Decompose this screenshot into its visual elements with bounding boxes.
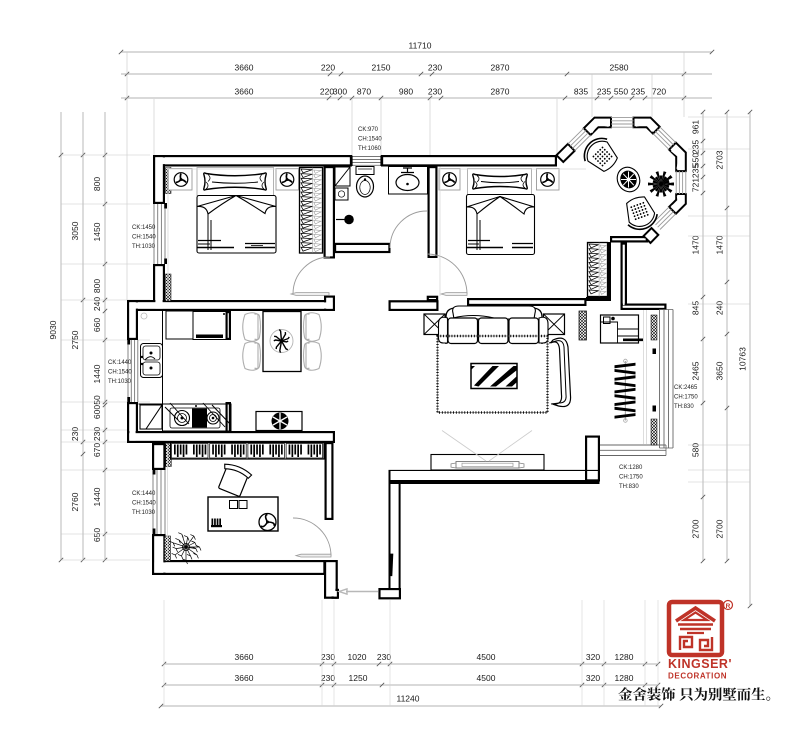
svg-text:550: 550: [614, 87, 628, 97]
svg-text:235: 235: [631, 87, 645, 97]
svg-text:CK:1440: CK:1440: [132, 491, 156, 497]
svg-text:TH:1030: TH:1030: [132, 244, 156, 250]
svg-text:961: 961: [691, 120, 701, 134]
svg-text:KINGSER': KINGSER': [668, 657, 732, 671]
svg-text:1020: 1020: [348, 652, 367, 662]
svg-text:TH:830: TH:830: [619, 484, 639, 490]
svg-text:800: 800: [92, 177, 102, 191]
svg-text:2870: 2870: [491, 63, 510, 73]
svg-text:3650: 3650: [715, 361, 725, 380]
svg-text:1470: 1470: [691, 235, 701, 254]
svg-text:2703: 2703: [715, 150, 725, 169]
svg-text:3660: 3660: [235, 673, 254, 683]
svg-text:11240: 11240: [396, 694, 419, 704]
svg-text:CH:1540: CH:1540: [108, 370, 132, 376]
svg-text:TH:1060: TH:1060: [358, 146, 382, 152]
svg-text:CK:1450: CK:1450: [132, 225, 156, 231]
svg-text:721: 721: [691, 178, 701, 192]
svg-text:DECORATION: DECORATION: [668, 672, 727, 681]
svg-text:2150: 2150: [372, 63, 391, 73]
svg-text:3660: 3660: [235, 652, 254, 662]
svg-text:2465: 2465: [691, 361, 701, 380]
svg-text:CH:1540: CH:1540: [358, 137, 382, 143]
svg-text:3660: 3660: [235, 87, 254, 97]
svg-text:670: 670: [92, 443, 102, 457]
svg-text:220: 220: [321, 63, 335, 73]
svg-text:TH:1030: TH:1030: [108, 379, 132, 385]
svg-text:CH:1750: CH:1750: [619, 475, 643, 481]
svg-text:720: 720: [652, 87, 666, 97]
svg-text:1280: 1280: [615, 652, 634, 662]
svg-text:50: 50: [92, 395, 102, 405]
svg-text:230: 230: [92, 427, 102, 441]
svg-text:230: 230: [321, 652, 335, 662]
svg-text:230: 230: [428, 63, 442, 73]
svg-text:9030: 9030: [48, 320, 58, 339]
svg-text:2700: 2700: [715, 519, 725, 538]
svg-text:CH:1540: CH:1540: [132, 235, 156, 241]
svg-text:320: 320: [586, 652, 600, 662]
svg-text:1450: 1450: [92, 222, 102, 241]
svg-text:980: 980: [399, 87, 413, 97]
svg-text:600: 600: [92, 405, 102, 419]
svg-text:R: R: [726, 603, 731, 610]
svg-text:660: 660: [92, 318, 102, 332]
svg-text:2870: 2870: [491, 87, 510, 97]
svg-text:1440: 1440: [92, 487, 102, 506]
svg-text:3660: 3660: [235, 63, 254, 73]
svg-text:240: 240: [92, 297, 102, 311]
svg-text:800: 800: [92, 279, 102, 293]
svg-text:230: 230: [321, 673, 335, 683]
svg-text:CH:1540: CH:1540: [132, 501, 156, 507]
svg-text:TH:1030: TH:1030: [132, 510, 156, 516]
svg-text:2760: 2760: [70, 492, 80, 511]
svg-text:235: 235: [691, 140, 701, 154]
svg-text:835: 835: [574, 87, 588, 97]
svg-text:300: 300: [333, 87, 347, 97]
svg-text:TH:830: TH:830: [674, 404, 694, 410]
svg-text:3050: 3050: [70, 221, 80, 240]
svg-text:CK:1280: CK:1280: [619, 465, 643, 471]
svg-text:240: 240: [715, 301, 725, 315]
svg-text:CH:1750: CH:1750: [674, 395, 698, 401]
svg-text:1470: 1470: [715, 235, 725, 254]
svg-text:10763: 10763: [738, 347, 748, 371]
svg-text:4500: 4500: [477, 652, 496, 662]
svg-text:1280: 1280: [615, 673, 634, 683]
svg-text:235: 235: [691, 164, 701, 178]
svg-text:CK:970: CK:970: [358, 127, 379, 133]
svg-text:235: 235: [597, 87, 611, 97]
svg-text:230: 230: [377, 652, 391, 662]
svg-text:1250: 1250: [349, 673, 368, 683]
svg-text:1440: 1440: [92, 364, 102, 383]
svg-text:870: 870: [357, 87, 371, 97]
svg-text:230: 230: [70, 427, 80, 441]
svg-text:CK:1440: CK:1440: [108, 360, 132, 366]
svg-text:CK:2465: CK:2465: [674, 385, 698, 391]
svg-text:650: 650: [92, 528, 102, 542]
svg-text:2580: 2580: [610, 63, 629, 73]
svg-text:320: 320: [586, 673, 600, 683]
svg-text:11710: 11710: [408, 41, 431, 51]
svg-text:230: 230: [428, 87, 442, 97]
svg-text:2700: 2700: [691, 519, 701, 538]
svg-text:4500: 4500: [477, 673, 496, 683]
svg-text:845: 845: [691, 301, 701, 315]
